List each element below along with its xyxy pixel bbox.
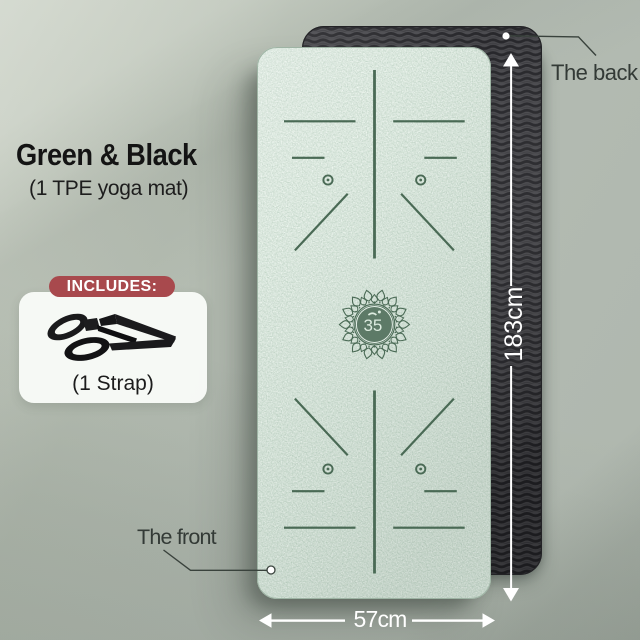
svg-text:35: 35	[363, 316, 382, 335]
